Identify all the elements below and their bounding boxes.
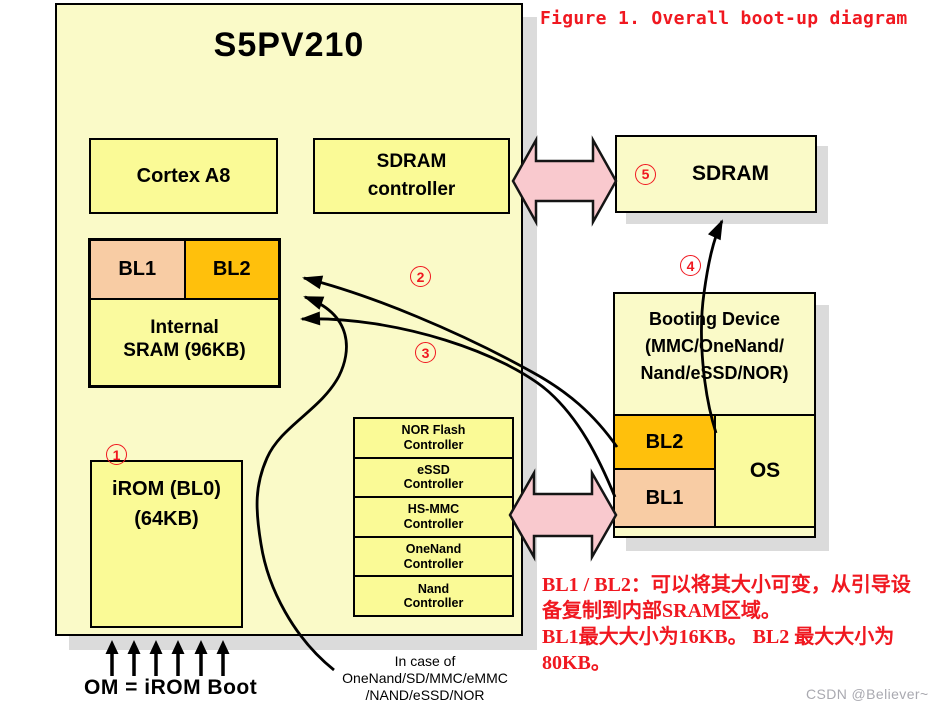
sram-bl1-cell: BL1 bbox=[91, 241, 184, 298]
booting-device-title: Booting Device (MMC/OneNand/ Nand/eSSD/N… bbox=[615, 294, 814, 387]
ctrl-label: Controller bbox=[404, 517, 464, 532]
step-1-marker: 1 bbox=[106, 444, 127, 465]
red-note: BL1 / BL2：可以将其大小可变，从引导设 备复制到内部SRAM区域。 BL… bbox=[542, 572, 940, 676]
ctrl-label: Controller bbox=[404, 557, 464, 572]
ctrl-label: Controller bbox=[404, 596, 464, 611]
ctrl-label: NOR Flash bbox=[402, 423, 466, 438]
om-boot-label: OM = iROM Boot bbox=[84, 676, 257, 700]
booting-bl2-cell: BL2 bbox=[613, 414, 716, 470]
step-2-marker: 2 bbox=[410, 266, 431, 287]
sram-top-row: BL1 BL2 bbox=[91, 241, 278, 300]
in-case-line2: OneNand/SD/MMC/eMMC bbox=[335, 670, 515, 687]
figure-caption: Figure 1. Overall boot-up diagram bbox=[540, 8, 908, 29]
sdram-controller-line1: SDRAM bbox=[377, 148, 447, 176]
controller-stack: NOR Flash Controller eSSD Controller HS-… bbox=[353, 417, 514, 617]
in-case-note: In case of OneNand/SD/MMC/eMMC /NAND/eSS… bbox=[335, 653, 515, 704]
sdram-controller-line2: controller bbox=[368, 176, 456, 204]
step-3-marker: 3 bbox=[415, 342, 436, 363]
sram-bl2-cell: BL2 bbox=[184, 241, 279, 298]
nand-controller: Nand Controller bbox=[355, 575, 512, 615]
internal-sram-box: BL1 BL2 Internal SRAM (96KB) bbox=[88, 238, 281, 388]
ctrl-label: Nand bbox=[418, 582, 449, 597]
booting-title-line1: Booting Device bbox=[615, 306, 814, 333]
hs-mmc-controller: HS-MMC Controller bbox=[355, 496, 512, 536]
ctrl-label: eSSD bbox=[417, 463, 450, 478]
ctrl-label: Controller bbox=[404, 438, 464, 453]
red-note-line2: 备复制到内部SRAM区域。 bbox=[542, 598, 940, 624]
watermark: CSDN @Believer~ bbox=[806, 686, 929, 702]
booting-title-line2: (MMC/OneNand/ bbox=[615, 333, 814, 360]
sram-label: Internal SRAM (96KB) bbox=[91, 316, 278, 362]
booting-bl1-cell: BL1 bbox=[613, 468, 716, 528]
bootup-diagram: S5PV210 Cortex A8 SDRAM controller BL1 B… bbox=[0, 0, 940, 715]
ctrl-label: OneNand bbox=[406, 542, 462, 557]
irom-line1: iROM (BL0) bbox=[112, 474, 221, 504]
irom-line2: (64KB) bbox=[134, 504, 198, 534]
red-note-line4: 80KB。 bbox=[542, 650, 940, 676]
nor-flash-controller: NOR Flash Controller bbox=[355, 419, 512, 457]
sdram-controller-box: SDRAM controller bbox=[313, 138, 510, 214]
step-5-marker: 5 bbox=[635, 164, 656, 185]
cortex-a8-box: Cortex A8 bbox=[89, 138, 278, 214]
irom-box: iROM (BL0) (64KB) bbox=[90, 460, 243, 628]
booting-title-line3: Nand/eSSD/NOR) bbox=[615, 360, 814, 387]
essd-controller: eSSD Controller bbox=[355, 457, 512, 497]
sram-label-line1: Internal bbox=[91, 316, 278, 339]
sdram-box: 5 SDRAM bbox=[615, 135, 817, 213]
red-note-line1: BL1 / BL2：可以将其大小可变，从引导设 bbox=[542, 572, 940, 598]
in-case-line1: In case of bbox=[335, 653, 515, 670]
in-case-line3: /NAND/eSSD/NOR bbox=[335, 687, 515, 704]
step-4-marker: 4 bbox=[680, 255, 701, 276]
red-note-line3: BL1最大大小为16KB。 BL2 最大大小为 bbox=[542, 624, 940, 650]
ctrl-label: Controller bbox=[404, 477, 464, 492]
sdram-label: SDRAM bbox=[692, 162, 769, 186]
booting-os-cell: OS bbox=[714, 414, 816, 528]
ctrl-label: HS-MMC bbox=[408, 502, 459, 517]
onenand-controller: OneNand Controller bbox=[355, 536, 512, 576]
chip-title: S5PV210 bbox=[55, 26, 523, 65]
sram-label-line2: SRAM (96KB) bbox=[91, 339, 278, 362]
